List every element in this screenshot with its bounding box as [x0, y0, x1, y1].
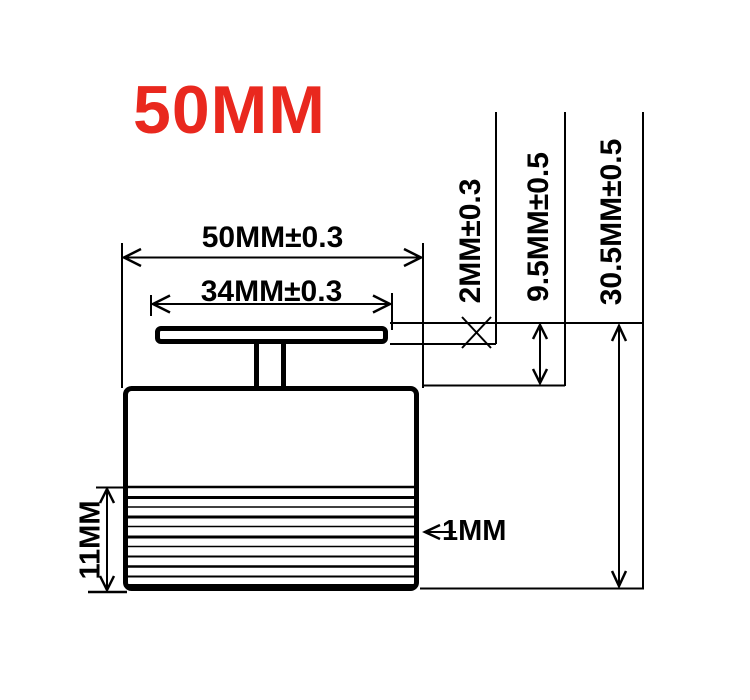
dimension-label-outer-width: 50MM±0.3	[122, 223, 423, 253]
dimension-label-upper-height: 9.5MM±0.5	[524, 152, 554, 302]
dimension-label-ribbed-height: 11MM	[77, 501, 106, 580]
dimension-label-plate-thickness: 2MM±0.3	[456, 179, 486, 304]
stem-outline	[257, 344, 284, 388]
dimension-label-total-height: 30.5MM±0.5	[597, 139, 627, 306]
speaker-body-outline	[126, 389, 417, 589]
page-title: 50MM	[133, 76, 326, 144]
dimension-drawing	[0, 0, 750, 700]
dimension-label-plate-width: 34MM±0.3	[151, 277, 392, 307]
technical-drawing-canvas: 50MM 50MM±0.3 34MM±0.3 2MM±0.3 9.5MM±0.5…	[0, 0, 750, 700]
top-plate-outline	[158, 329, 386, 342]
dimension-label-rib-pitch: 1MM	[442, 517, 506, 546]
